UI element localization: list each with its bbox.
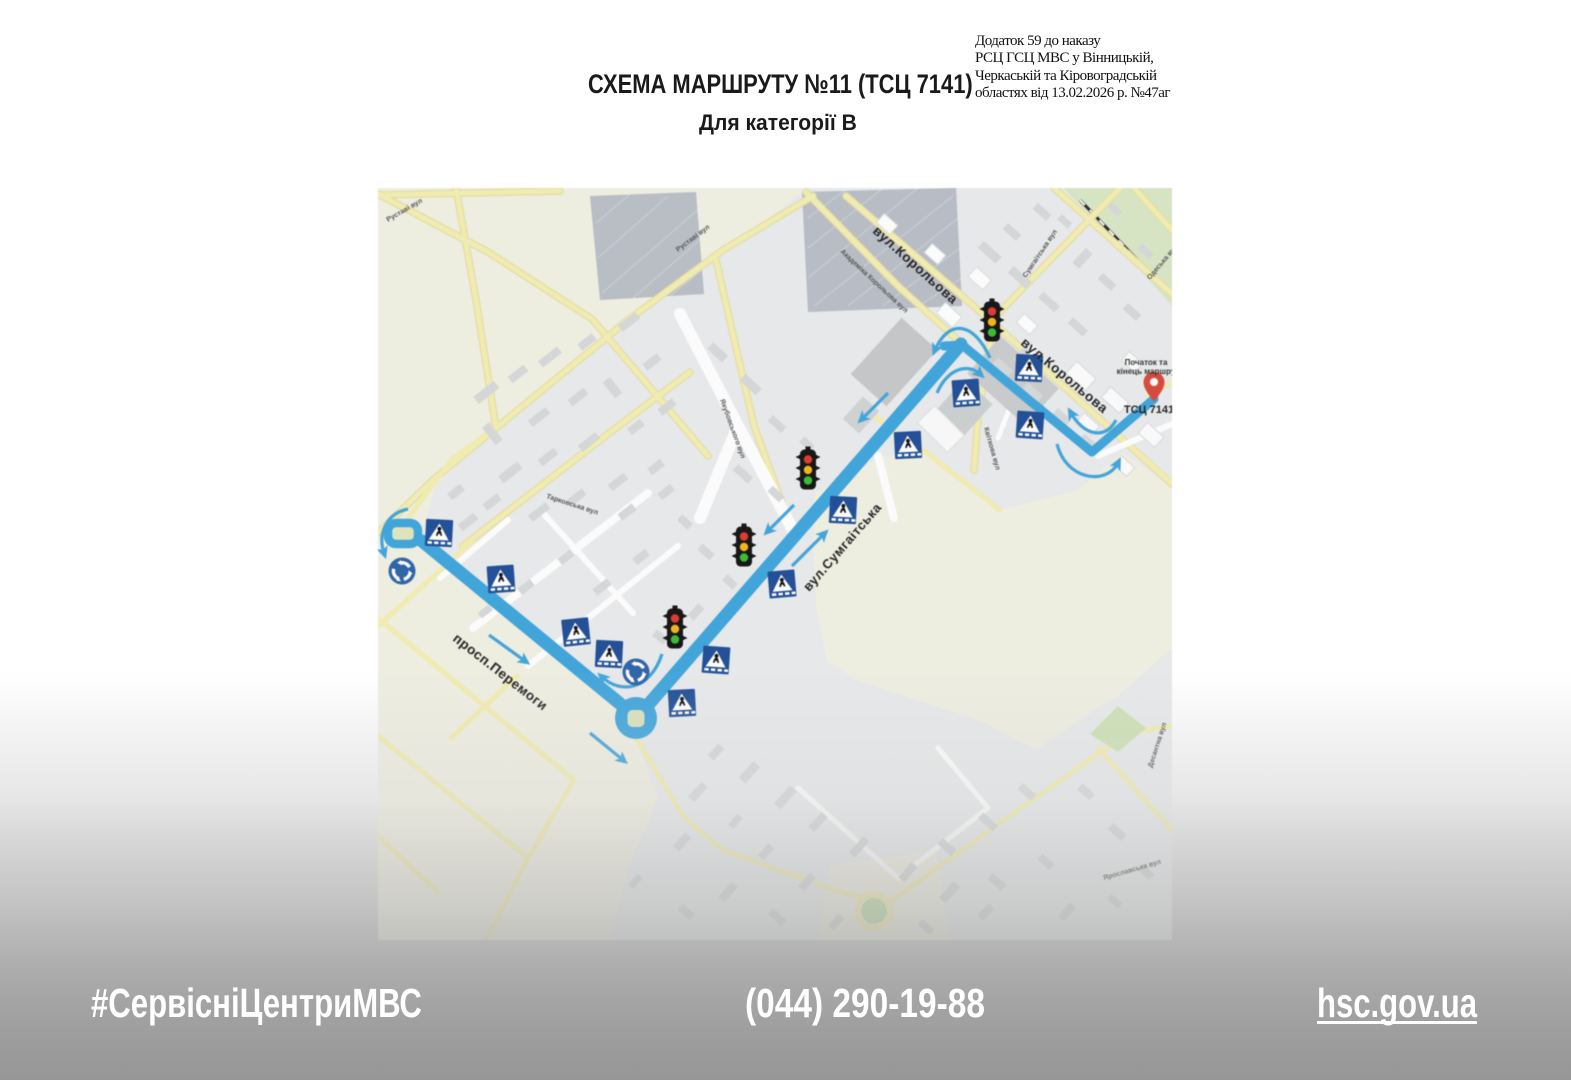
svg-text:ТСЦ 7141: ТСЦ 7141 xyxy=(1124,404,1172,416)
svg-text:Початок та: Початок та xyxy=(1125,358,1168,367)
svg-text:кінець маршрут: кінець маршрут xyxy=(1117,367,1172,376)
